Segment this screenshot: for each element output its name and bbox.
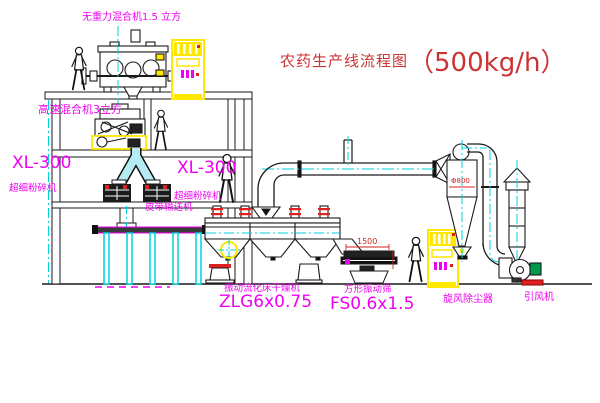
mill-discharge-duct [117,206,136,227]
dim-cyclone-diameter: Φ800 [451,178,470,185]
label-cyclone-name: 旋风除尘器 [443,295,493,305]
title-text: 农药生产线流程图 [280,50,408,71]
fan-base [522,280,543,285]
valve-highlight [156,70,164,76]
person-figure [154,110,167,149]
label-mill-right-model: XL-300 [177,160,236,177]
button [434,262,437,270]
button [186,70,189,78]
indicator-light [452,233,455,236]
label-fan-name: 引风机 [524,293,554,303]
process-flow-diagram: 农药生产线流程图 （500kg/h） 无重力混合机1.5 立方 高速混合机3立方… [0,0,600,403]
button [444,262,447,270]
label-belt-conveyor: 皮带输送机 [145,203,193,213]
label-top-mixer: 无重力混合机1.5 立方 [82,13,181,23]
title-capacity: （500kg/h） [408,42,566,79]
label-mill-left-name: 超细粉碎机 [9,184,57,194]
ground-line [42,284,592,287]
button [181,70,184,78]
mill-left [103,184,131,202]
mill-right [143,184,171,202]
induced-draft-fan [499,258,543,285]
control-cabinet-1 [172,40,204,99]
indicator-light [450,264,453,267]
dim-screen-length: 1500 [357,238,377,246]
indicator-light [197,45,200,48]
control-cabinet-2 [428,230,458,287]
drawing-title: 农药生产线流程图 （500kg/h） [280,42,566,78]
label-high-speed-mixer: 高速混合机3立方 [38,104,122,115]
belt-conveyor [92,225,208,284]
label-mill-right-name: 超细粉碎机 [174,192,222,202]
label-screen-model: FS0.6x1.5 [330,296,414,313]
valve-highlight [156,54,164,60]
person-figure [409,237,424,281]
button [439,262,442,270]
indicator-light [196,73,199,76]
exhaust-duct [262,136,444,177]
button [191,70,194,78]
fan-motor [530,263,541,275]
label-dryer-model: ZLG6x0.75 [219,294,312,311]
label-mill-left-model: XL-300 [12,155,71,172]
